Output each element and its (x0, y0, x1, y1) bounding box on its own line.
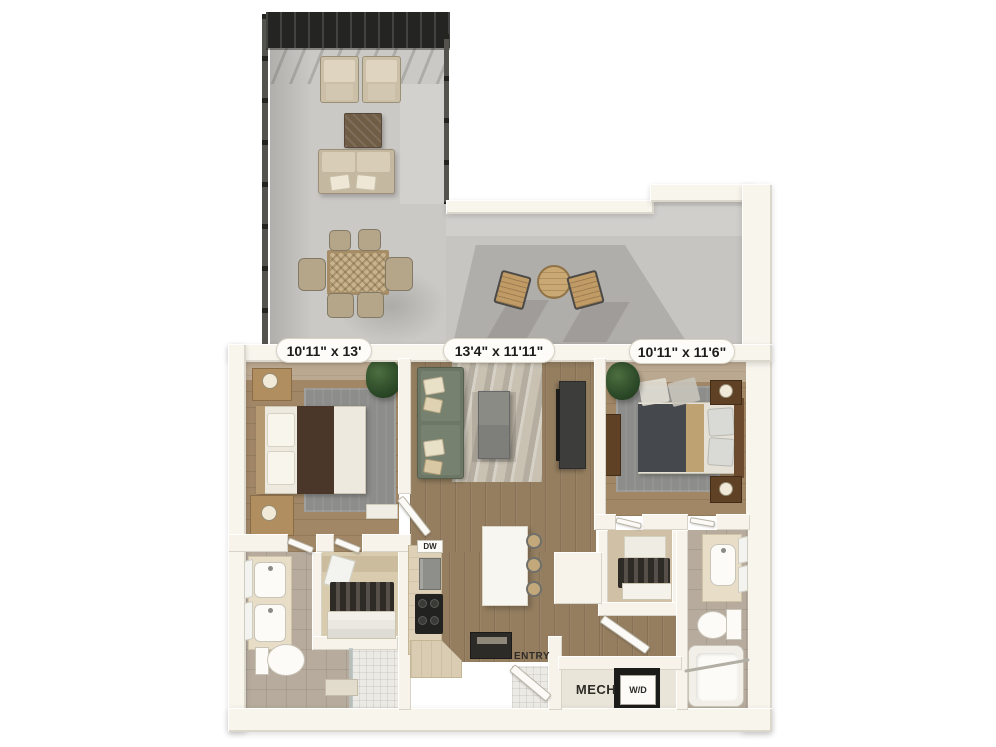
shower-glass-panel (349, 648, 353, 708)
closet-shelf (624, 536, 666, 558)
throw-pillow (423, 376, 445, 395)
vanity-mirror (244, 601, 253, 641)
wall-closet2-bottom (598, 602, 684, 616)
outer-wall-bottom (228, 708, 772, 732)
terrace-parapet-wall (446, 200, 654, 214)
bench-tray (477, 637, 507, 644)
sink (254, 562, 286, 598)
throw-pillow (329, 174, 351, 192)
wall-living-bedroom2 (594, 358, 606, 516)
terrace-wall-shadow (270, 40, 312, 348)
lounge-chair-cushion (366, 60, 397, 82)
burner (430, 616, 439, 625)
wall-bedroom1-bottom (316, 534, 334, 552)
lounge-chair-seat (326, 84, 353, 100)
closet-2-door (615, 517, 642, 529)
bed-pillow (707, 407, 735, 437)
tv (556, 389, 560, 461)
wall-bedroom1-living (398, 358, 411, 494)
table-lamp (719, 384, 733, 398)
throw-pillow (355, 174, 376, 191)
faucet (268, 566, 273, 571)
vanity-mirror (738, 536, 748, 564)
vanity-mirror (244, 559, 253, 599)
potted-plant (366, 358, 402, 398)
coffee-table (478, 391, 510, 459)
dishwasher: DW (417, 540, 443, 553)
closet-dresser (327, 611, 396, 639)
outdoor-coffee-table (344, 113, 382, 148)
bed-pillow (267, 413, 295, 447)
closet-dresser (622, 583, 672, 600)
dresser (604, 414, 621, 476)
toilet-bowl (267, 644, 305, 676)
sink (254, 604, 286, 642)
throw-pillow (423, 439, 445, 458)
lounge-chair-cushion (324, 60, 355, 82)
bathtub (688, 645, 744, 707)
toilet-bowl (697, 611, 729, 639)
vanity-mirror (738, 565, 748, 593)
table-lamp (261, 505, 277, 521)
wall-mech-left (548, 636, 562, 710)
outdoor-dining-chair (327, 293, 354, 318)
bar-stool (526, 557, 542, 573)
accent-table (366, 504, 398, 519)
outdoor-dining-chair (298, 258, 326, 291)
dimension-label-living-room: 13'4" x 11'11" (443, 338, 555, 363)
burner (418, 616, 427, 625)
burner (418, 599, 427, 608)
wall-bedroom1-bottom (362, 534, 411, 552)
bed-charcoal-blanket (638, 404, 688, 472)
faucet (721, 548, 726, 553)
outdoor-dining-chair (385, 257, 413, 291)
cooktop (415, 594, 443, 634)
bedroom-1-headboard (256, 406, 265, 494)
outdoor-sofa-cushion (322, 152, 355, 172)
table-lamp (719, 482, 733, 496)
throw-pillow (423, 459, 443, 476)
kitchen-island (482, 526, 528, 606)
shower-bench (325, 679, 358, 696)
folded-throw (638, 378, 670, 406)
bathroom-2-door (689, 517, 715, 527)
table-lamp (262, 373, 278, 389)
bed-tan-runner (686, 404, 704, 472)
dimension-text: 13'4" x 11'11" (455, 343, 543, 359)
wall-bedroom2-bottom (594, 514, 616, 530)
wall-island-back (554, 552, 602, 604)
dimension-text: 10'11" x 11'6" (638, 344, 726, 360)
lounge-chair-seat (368, 84, 395, 100)
dimension-label-bedroom-1: 10'11" x 13' (276, 338, 372, 363)
dw-label: DW (423, 542, 436, 551)
wall-bedroom2-bottom (642, 514, 688, 530)
burner (430, 599, 439, 608)
terrace-railing-right (444, 34, 449, 204)
wall-bathroom2-left (676, 530, 688, 710)
bathtub-basin (696, 653, 738, 701)
outdoor-dining-chair (358, 229, 381, 251)
sink (710, 544, 736, 586)
bedroom-2-headboard (734, 398, 744, 478)
mech-label: MECH (564, 681, 628, 697)
outdoor-sofa-cushion (357, 152, 390, 172)
potted-plant (606, 362, 640, 400)
dimension-label-bedroom-2: 10'11" x 11'6" (629, 339, 735, 364)
tv-console (559, 381, 586, 469)
outdoor-dining-chair (357, 292, 384, 318)
shower-floor (352, 650, 398, 708)
wd-label: W/D (629, 685, 647, 695)
faucet (268, 608, 273, 613)
outdoor-dining-table (327, 250, 389, 295)
bed-runner-blanket (297, 406, 334, 494)
pergola (266, 12, 450, 48)
hanging-clothes (330, 582, 394, 614)
terrace-railing-left (262, 14, 268, 350)
bar-stool (526, 581, 542, 597)
toilet-tank (726, 609, 742, 640)
outdoor-dining-chair (329, 230, 351, 251)
terrace-parapet-wall-upper (650, 184, 754, 202)
bed-pillow (267, 451, 295, 485)
refrigerator (419, 558, 441, 590)
floorplan-canvas: DW W/D ENTRY MECH 10'11" x 13' 13'4" x 1… (0, 0, 996, 747)
terrace-light-band (400, 84, 446, 204)
dimension-text: 10'11" x 13' (287, 343, 362, 359)
wall-closet1-left (312, 552, 322, 648)
entry-label: ENTRY (504, 650, 560, 662)
entry-label-text: ENTRY (514, 651, 550, 662)
mech-label-text: MECH (576, 682, 616, 697)
wall-bedroom2-bottom (716, 514, 750, 530)
bistro-table (537, 265, 571, 299)
bar-stool (526, 533, 542, 549)
bed-pillow (707, 437, 735, 467)
wall-bedroom1-bottom (228, 534, 288, 552)
